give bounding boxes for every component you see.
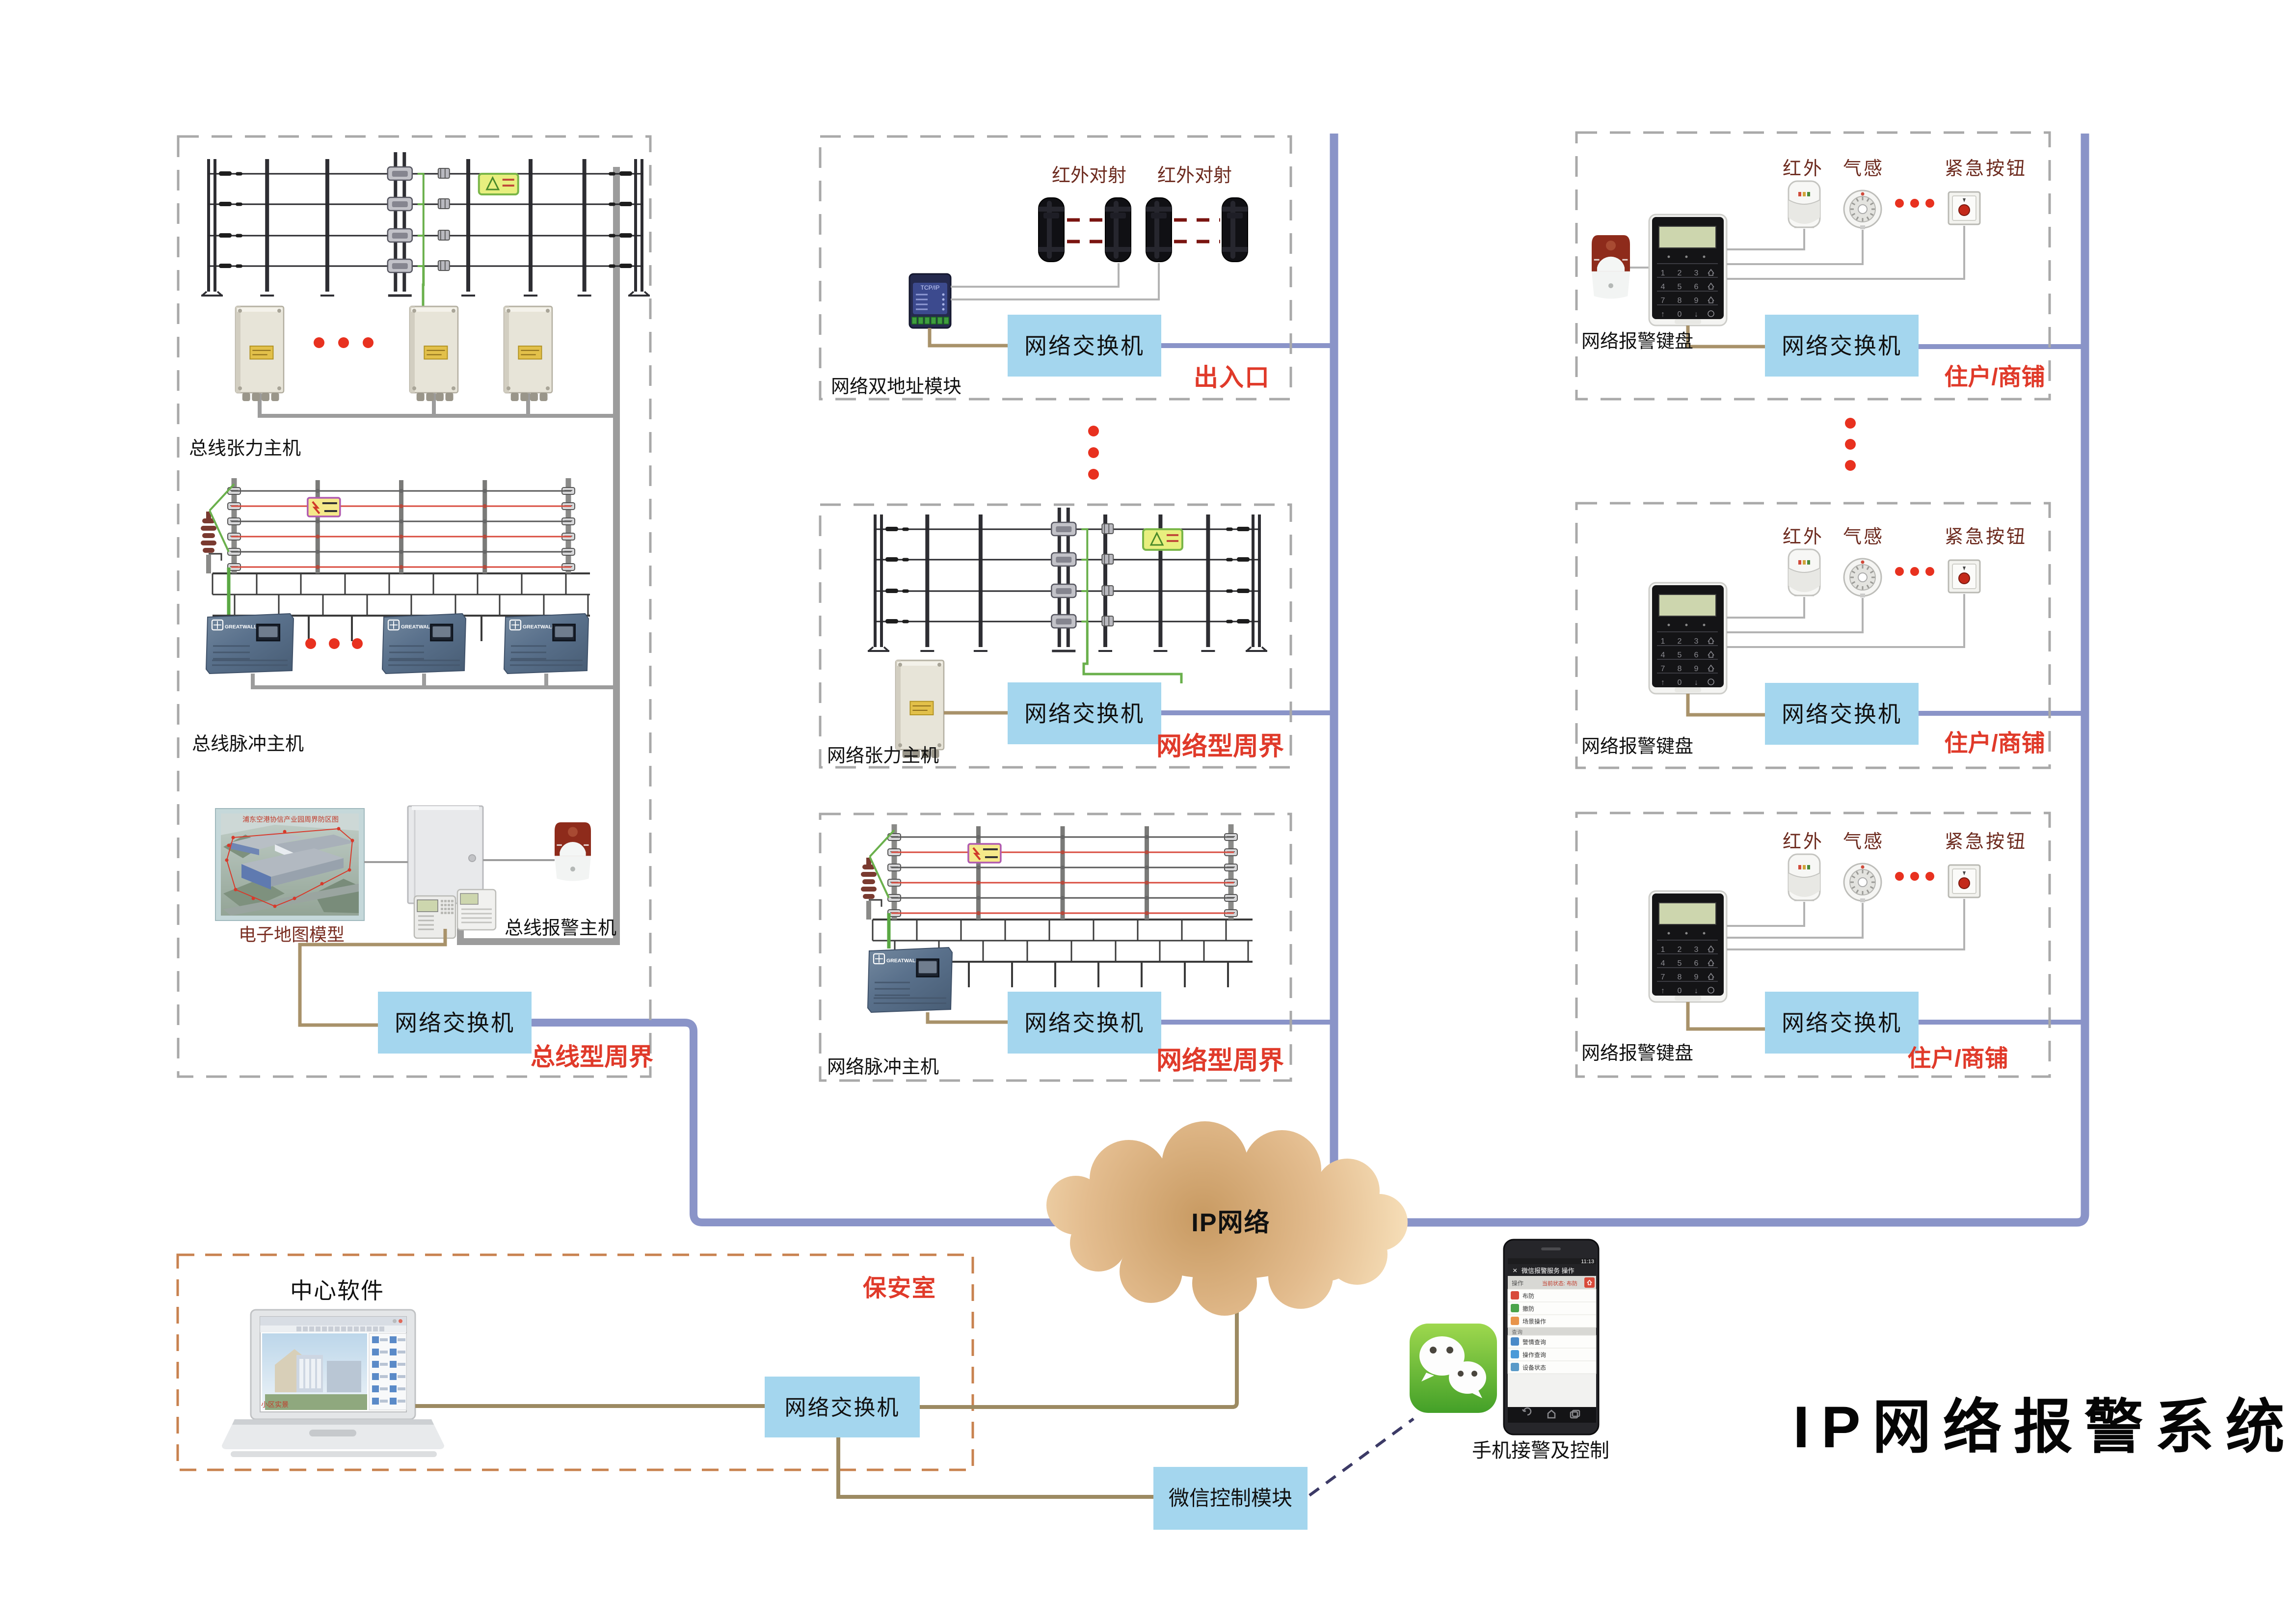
svg-text:设备状态: 设备状态 — [1522, 1363, 1546, 1372]
svg-text:GREATWALL: GREATWALL — [401, 623, 433, 630]
svg-text:查询: 查询 — [1512, 1328, 1522, 1336]
svg-text:↓: ↓ — [1694, 984, 1698, 996]
svg-text:红外: 红外 — [1783, 521, 1824, 548]
svg-text:7: 7 — [1661, 970, 1665, 982]
svg-text:TCP/IP: TCP/IP — [921, 283, 940, 292]
svg-text:1: 1 — [1661, 943, 1665, 954]
svg-text:紧急按钮: 紧急按钮 — [1945, 153, 2027, 180]
svg-text:IP网络报警系统: IP网络报警系统 — [1793, 1379, 2296, 1464]
svg-text:4: 4 — [1661, 648, 1665, 660]
svg-text:布防: 布防 — [1522, 1292, 1534, 1300]
svg-text:红外: 红外 — [1783, 153, 1824, 180]
svg-text:网络交换机: 网络交换机 — [1024, 696, 1145, 729]
svg-text:3: 3 — [1694, 266, 1699, 278]
svg-text:2: 2 — [1678, 266, 1682, 278]
svg-text:气感: 气感 — [1843, 826, 1884, 853]
svg-text:住户/商铺: 住户/商铺 — [1944, 724, 2045, 758]
svg-text:总线型周界: 总线型周界 — [531, 1037, 653, 1073]
svg-text:7: 7 — [1661, 662, 1665, 674]
svg-text:2: 2 — [1678, 634, 1682, 646]
svg-text:8: 8 — [1678, 970, 1682, 982]
svg-text:3: 3 — [1694, 943, 1699, 954]
svg-text:网络报警键盘: 网络报警键盘 — [1581, 1038, 1693, 1065]
svg-text:7: 7 — [1661, 294, 1665, 305]
svg-text:当前状态: 布防: 当前状态: 布防 — [1542, 1279, 1577, 1287]
svg-text:网络交换机: 网络交换机 — [1782, 328, 1902, 361]
svg-text:8: 8 — [1678, 294, 1682, 305]
svg-text:5: 5 — [1678, 648, 1682, 660]
svg-text:GREATWALL: GREATWALL — [523, 623, 555, 630]
svg-text:小区实景: 小区实景 — [261, 1400, 289, 1409]
svg-text:网络交换机: 网络交换机 — [1024, 328, 1145, 361]
svg-text:紧急按钮: 紧急按钮 — [1945, 521, 2027, 548]
svg-text:气感: 气感 — [1843, 153, 1884, 180]
svg-text:×: × — [1513, 1264, 1517, 1275]
svg-text:2: 2 — [1678, 943, 1682, 954]
svg-text:微信控制模块: 微信控制模块 — [1169, 1482, 1292, 1512]
svg-text:总线报警主机: 总线报警主机 — [505, 913, 616, 940]
svg-text:网络交换机: 网络交换机 — [1782, 697, 1902, 729]
svg-text:网络报警键盘: 网络报警键盘 — [1581, 731, 1693, 758]
svg-text:↓: ↓ — [1694, 676, 1698, 687]
svg-text:场景操作: 场景操作 — [1522, 1317, 1546, 1326]
svg-text:9: 9 — [1694, 970, 1699, 982]
svg-text:9: 9 — [1694, 662, 1699, 674]
svg-text:1: 1 — [1661, 634, 1665, 646]
svg-text:住户/商铺: 住户/商铺 — [1944, 357, 2045, 392]
svg-text:GREATWALL: GREATWALL — [886, 957, 919, 964]
svg-text:红外对射: 红外对射 — [1052, 160, 1126, 187]
svg-text:红外: 红外 — [1783, 826, 1824, 853]
svg-text:气感: 气感 — [1843, 521, 1884, 548]
svg-text:紧急按钮: 紧急按钮 — [1945, 826, 2027, 853]
svg-text:6: 6 — [1694, 280, 1699, 292]
svg-text:4: 4 — [1661, 956, 1665, 968]
svg-text:电子地图模型: 电子地图模型 — [239, 920, 345, 946]
svg-text:4: 4 — [1661, 280, 1665, 292]
svg-text:网络双地址模块: 网络双地址模块 — [831, 371, 961, 398]
svg-text:6: 6 — [1694, 648, 1699, 660]
svg-text:警情查询: 警情查询 — [1522, 1338, 1546, 1346]
svg-text:网络交换机: 网络交换机 — [395, 1005, 515, 1038]
svg-text:网络交换机: 网络交换机 — [1024, 1005, 1145, 1038]
svg-text:网络型周界: 网络型周界 — [1156, 726, 1284, 762]
svg-text:操作: 操作 — [1512, 1279, 1523, 1287]
svg-text:红外对射: 红外对射 — [1157, 160, 1232, 187]
svg-text:总线脉冲主机: 总线脉冲主机 — [192, 729, 304, 756]
svg-text:总线张力主机: 总线张力主机 — [189, 433, 301, 460]
svg-text:↑: ↑ — [1661, 984, 1665, 996]
svg-text:3: 3 — [1694, 634, 1699, 646]
svg-text:网络型周界: 网络型周界 — [1156, 1040, 1284, 1077]
svg-text:↑: ↑ — [1661, 676, 1665, 687]
svg-text:住户/商铺: 住户/商铺 — [1907, 1039, 2008, 1073]
svg-text:9: 9 — [1694, 294, 1699, 305]
svg-text:网络报警键盘: 网络报警键盘 — [1581, 326, 1693, 353]
svg-text:5: 5 — [1678, 280, 1682, 292]
svg-text:出入口: 出入口 — [1194, 358, 1270, 393]
svg-text:11:13: 11:13 — [1581, 1257, 1594, 1265]
svg-text:微信报警服务 操作: 微信报警服务 操作 — [1522, 1266, 1575, 1275]
svg-text:网络交换机: 网络交换机 — [1782, 1005, 1902, 1038]
svg-text:0: 0 — [1678, 984, 1682, 996]
svg-text:0: 0 — [1678, 676, 1682, 687]
svg-text:中心软件: 中心软件 — [290, 1273, 384, 1305]
svg-text:网络张力主机: 网络张力主机 — [827, 740, 939, 767]
svg-text:0: 0 — [1678, 307, 1682, 319]
svg-text:5: 5 — [1678, 956, 1682, 968]
svg-text:撤防: 撤防 — [1522, 1304, 1534, 1313]
svg-text:IP网络: IP网络 — [1191, 1202, 1270, 1239]
svg-text:1: 1 — [1661, 266, 1665, 278]
svg-text:网络交换机: 网络交换机 — [785, 1390, 900, 1421]
svg-text:GREATWALL: GREATWALL — [225, 623, 257, 630]
svg-text:手机接警及控制: 手机接警及控制 — [1472, 1435, 1609, 1463]
svg-text:保安室: 保安室 — [863, 1269, 936, 1303]
svg-text:8: 8 — [1678, 662, 1682, 674]
svg-text:6: 6 — [1694, 956, 1699, 968]
svg-text:↓: ↓ — [1694, 307, 1698, 319]
svg-text:操作查询: 操作查询 — [1522, 1351, 1546, 1359]
svg-text:浦东空港协信产业园周界防区图: 浦东空港协信产业园周界防区图 — [242, 814, 339, 824]
svg-text:网络脉冲主机: 网络脉冲主机 — [827, 1052, 939, 1079]
svg-text:↑: ↑ — [1661, 307, 1665, 319]
